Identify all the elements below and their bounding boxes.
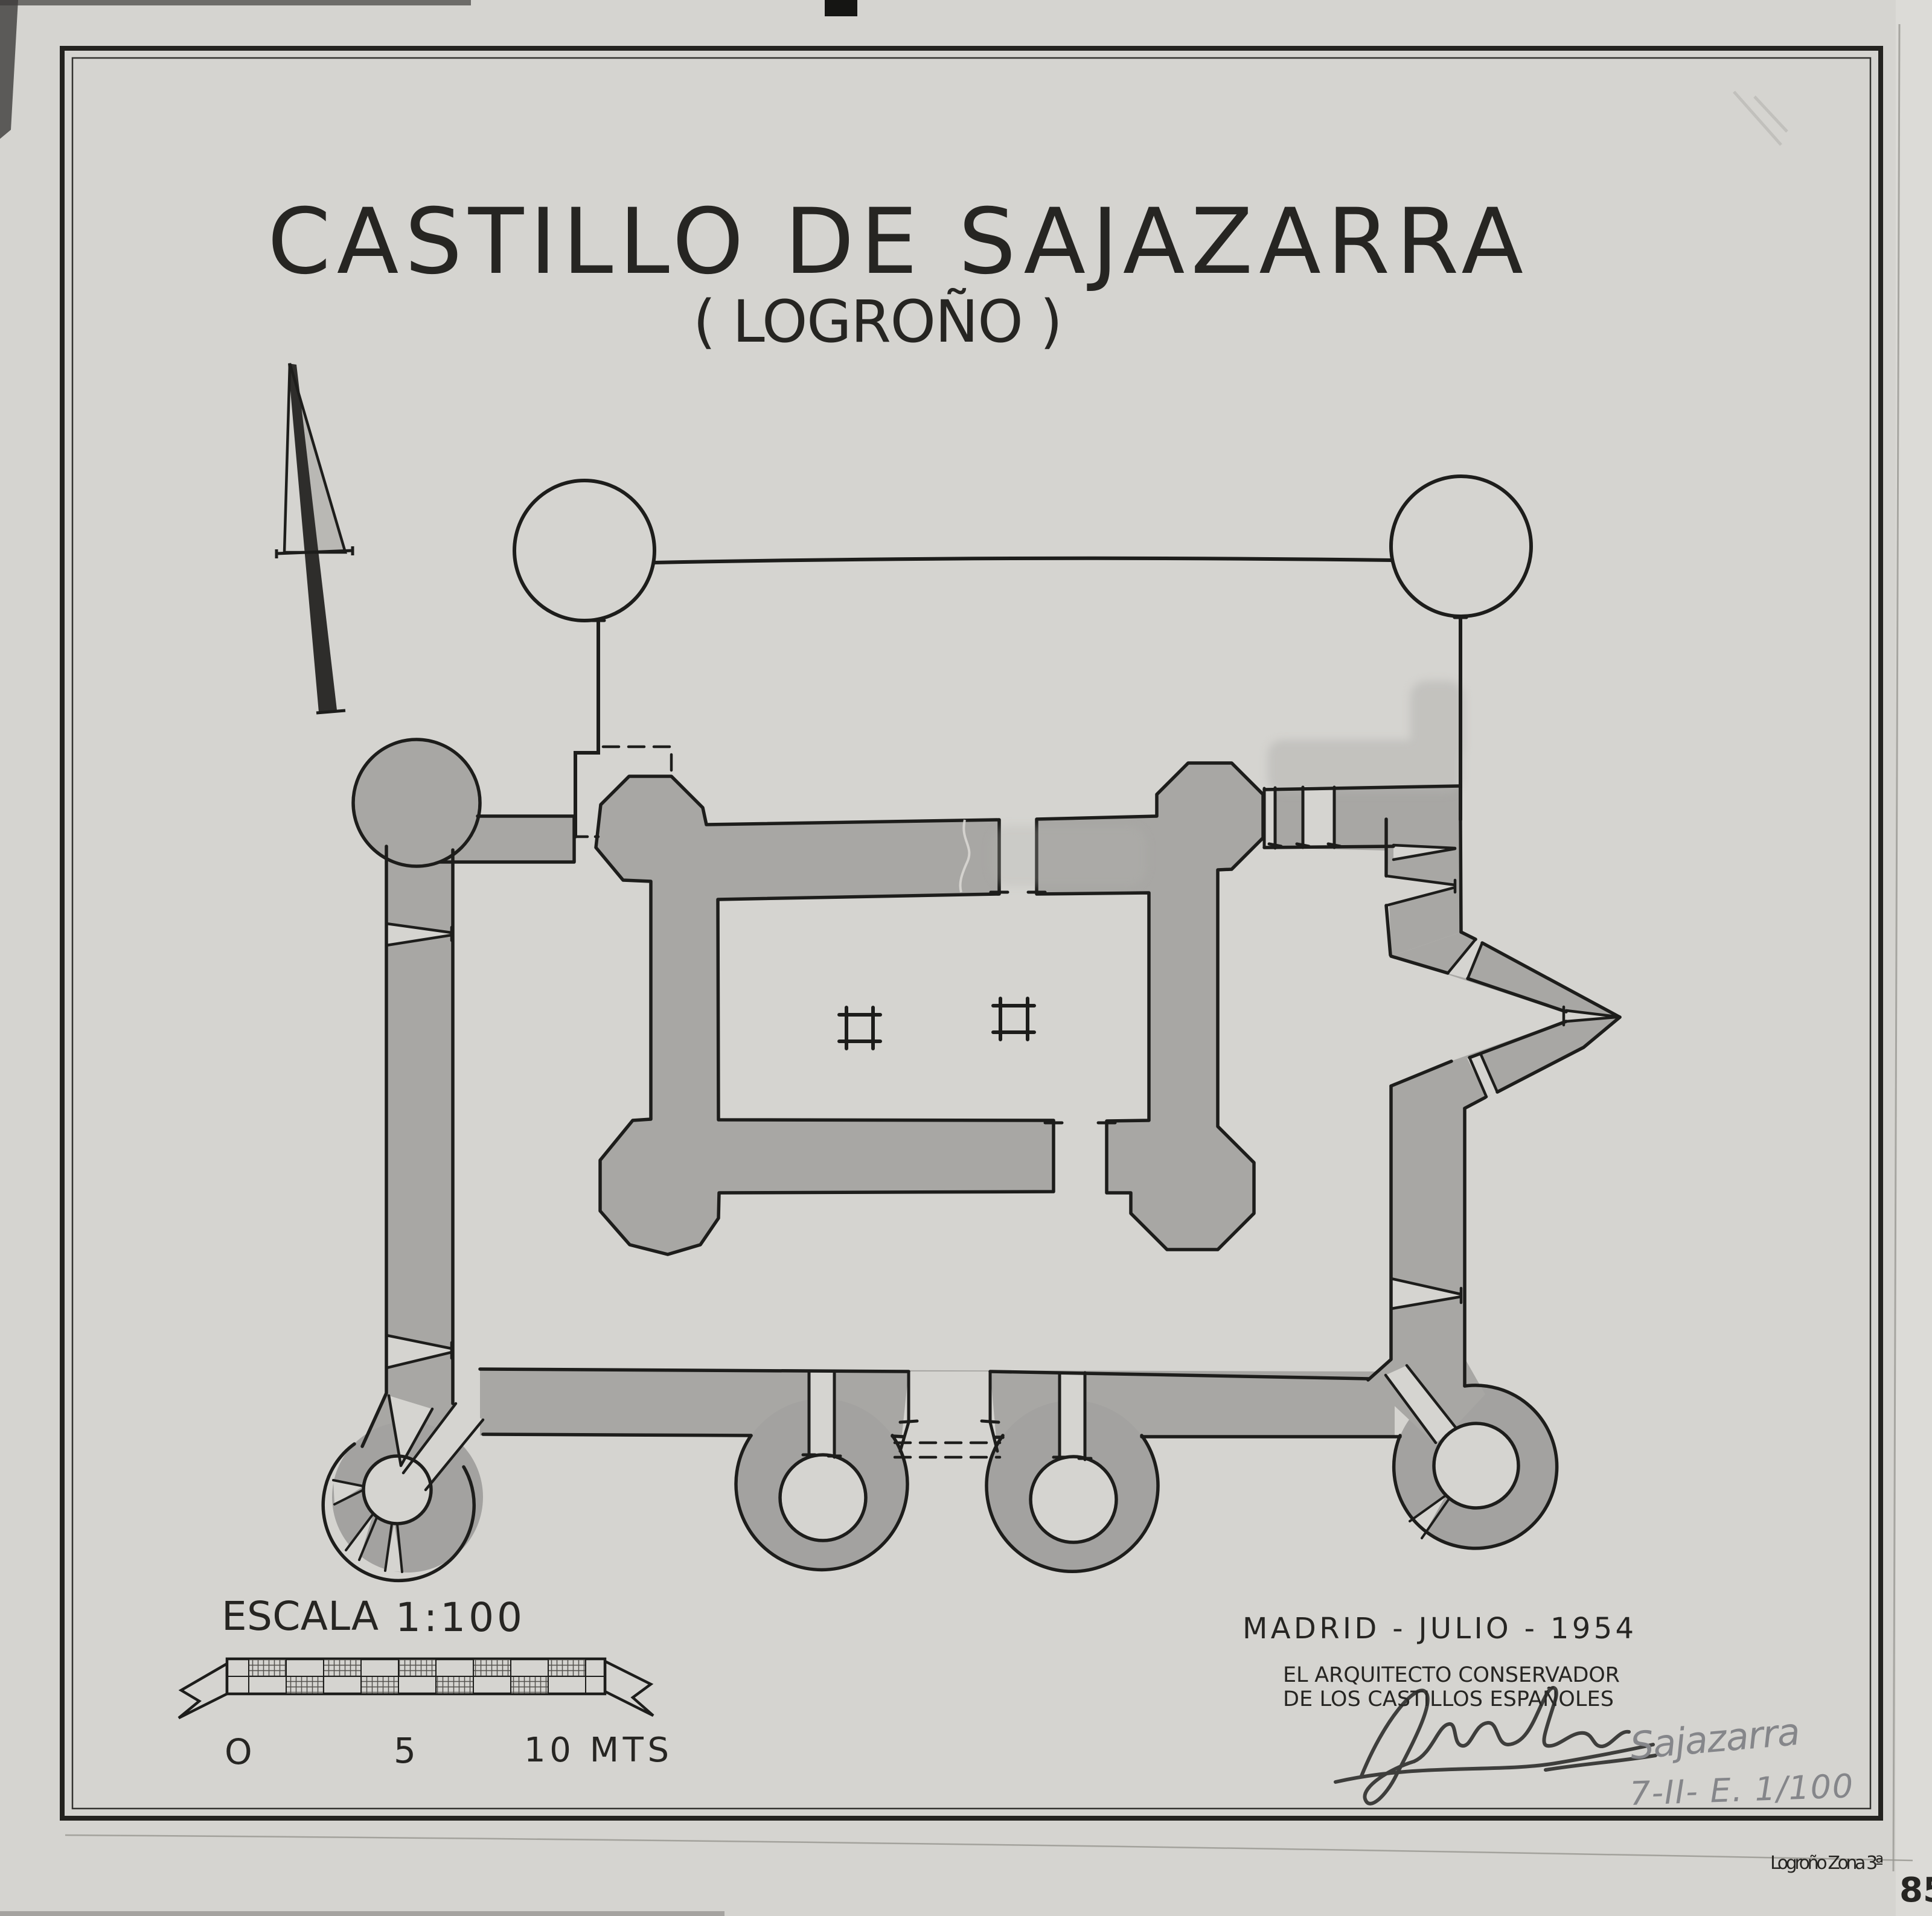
horseshoe1-corridor <box>809 1372 834 1457</box>
ne-band-gap-2 <box>1303 787 1334 848</box>
escala-label: ESCALA <box>222 1593 379 1640</box>
architect-line2: DE LOS CASTILLOS ESPAÑOLES <box>1283 1686 1614 1711</box>
ne-band-gap-1 <box>1264 787 1275 849</box>
escala-ratio: 1:100 <box>395 1594 522 1641</box>
castle-plan-drawing: CASTILLO DE SAJAZARRA ( LOGROÑO ) <box>0 0 1932 1916</box>
scan-top-edge <box>0 0 471 5</box>
architect-line1: EL ARQUITECTO CONSERVADOR <box>1283 1663 1620 1687</box>
south-gate-gap <box>900 1372 997 1451</box>
page-number-stamp: 85 <box>1899 1871 1932 1910</box>
margin-note: Logroño Zona 3ª <box>1770 1853 1884 1874</box>
place-date: MADRID - JULIO - 1954 <box>1243 1612 1634 1646</box>
page-subtitle: ( LOGROÑO ) <box>693 288 1063 356</box>
scale-tick-5: 5 <box>394 1730 416 1771</box>
scale-tick-0: O <box>225 1731 252 1772</box>
page-title: CASTILLO DE SAJAZARRA <box>267 190 1523 295</box>
scanned-plan-sheet: CASTILLO DE SAJAZARRA ( LOGROÑO ) <box>0 0 1932 1916</box>
scan-top-blob <box>825 0 857 16</box>
horseshoe2-corridor <box>1060 1373 1085 1460</box>
ne-band-fill <box>1264 785 1460 852</box>
page-edge-strip <box>1896 0 1932 1916</box>
